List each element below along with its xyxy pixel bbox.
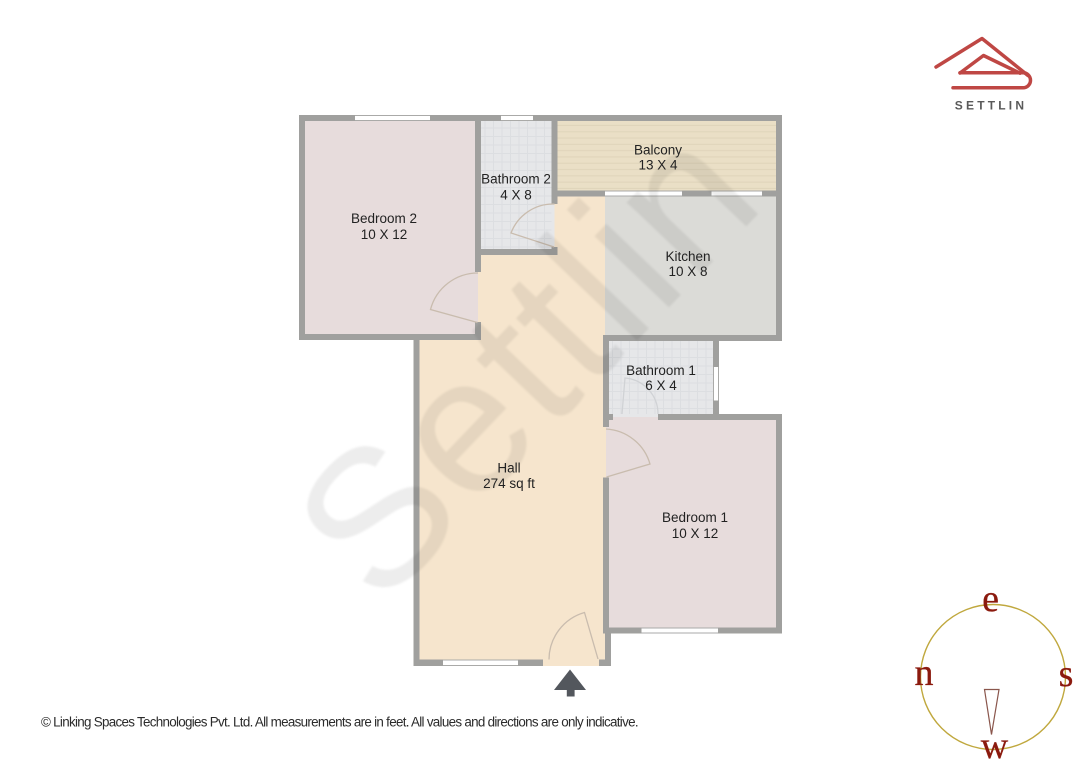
svg-text:e: e (982, 578, 999, 620)
svg-text:Bedroom 1: Bedroom 1 (662, 510, 728, 525)
svg-text:Bathroom 2: Bathroom 2 (481, 172, 551, 187)
svg-text:n: n (915, 652, 934, 694)
svg-text:10 X 8: 10 X 8 (668, 264, 707, 279)
svg-text:Kitchen: Kitchen (665, 249, 710, 264)
svg-text:© Linking Spaces Technologies: © Linking Spaces Technologies Pvt. Ltd. … (41, 715, 638, 730)
svg-text:SETTLIN: SETTLIN (955, 99, 1027, 113)
svg-text:s: s (1059, 653, 1074, 695)
svg-text:Bathroom 1: Bathroom 1 (626, 363, 696, 378)
svg-text:4 X 8: 4 X 8 (500, 188, 532, 203)
svg-text:274 sq ft: 274 sq ft (483, 476, 535, 491)
svg-text:10 X 12: 10 X 12 (361, 227, 408, 242)
svg-text:13 X 4: 13 X 4 (638, 158, 678, 173)
svg-text:Hall: Hall (497, 461, 520, 476)
svg-text:10 X 12: 10 X 12 (672, 526, 719, 541)
svg-text:Bedroom 2: Bedroom 2 (351, 211, 417, 226)
svg-text:6 X 4: 6 X 4 (645, 378, 677, 393)
svg-text:w: w (981, 725, 1009, 764)
svg-text:Balcony: Balcony (634, 143, 682, 158)
